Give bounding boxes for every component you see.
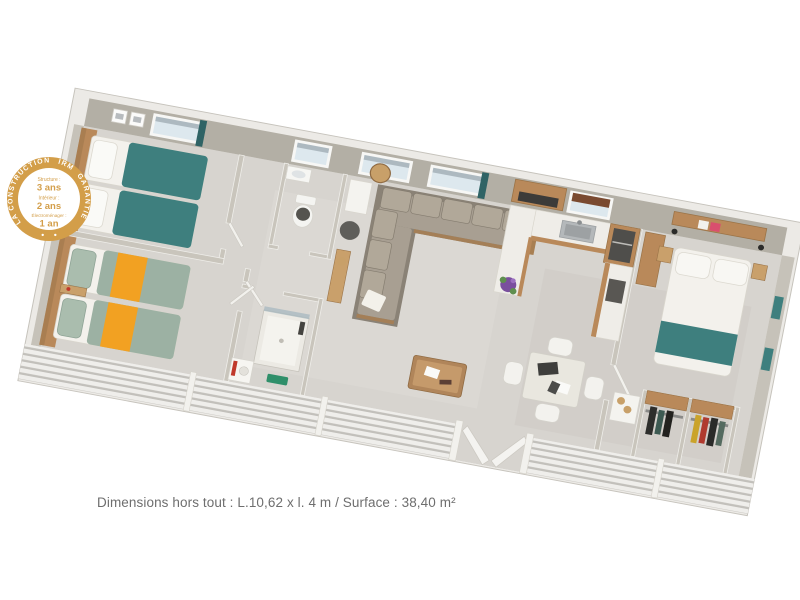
nightstand	[657, 246, 674, 263]
warranty-badge: LA CONSTRUCTION IRM GARANTIE Structure :…	[7, 157, 91, 241]
dimensions-caption: Dimensions hors tout : L.10,62 x l. 4 m …	[97, 495, 456, 510]
screenshot: LA CONSTRUCTION IRM GARANTIE Structure :…	[0, 0, 800, 600]
badge-dot-icon	[42, 234, 44, 236]
dressing-vanity	[609, 392, 640, 424]
warranty-label: Électroménager :	[32, 212, 67, 218]
badge-dot-icon	[54, 234, 56, 236]
laptop-icon	[537, 362, 558, 376]
floorplan	[18, 88, 800, 516]
dining-table	[522, 352, 586, 408]
warranty-value: 2 ans	[37, 201, 61, 212]
warranty-value: 1 an	[39, 219, 58, 230]
remote	[439, 380, 451, 385]
floorplan-image: LA CONSTRUCTION IRM GARANTIE Structure :…	[0, 0, 800, 600]
warranty-value: 3 ans	[37, 183, 61, 194]
nightstand	[751, 263, 768, 280]
bathroom-vanity	[228, 357, 254, 383]
